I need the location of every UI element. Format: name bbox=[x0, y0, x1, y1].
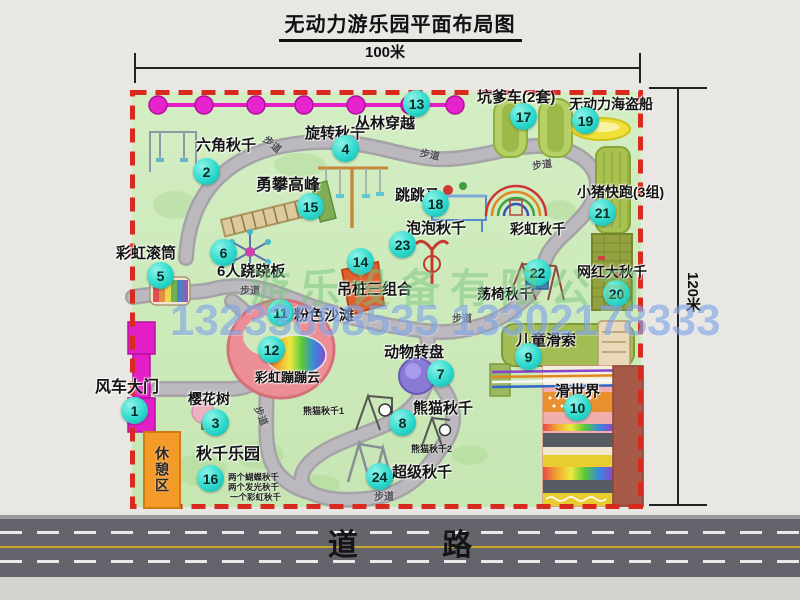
attraction-badge-2: 2 bbox=[193, 158, 220, 185]
attraction-label-24: 超级秋千 bbox=[392, 465, 452, 480]
attraction-badge-7: 7 bbox=[427, 360, 454, 387]
attraction-badge-5: 5 bbox=[147, 262, 174, 289]
attraction-badge-21: 21 bbox=[589, 199, 616, 226]
attraction-badge-10: 10 bbox=[564, 394, 591, 421]
attraction-badge-6: 6 bbox=[210, 239, 237, 266]
attraction-label-22: 荡椅秋千 bbox=[477, 287, 533, 301]
dim-height-tick-bottom bbox=[649, 504, 707, 506]
attraction-badge-4: 4 bbox=[332, 135, 359, 162]
attraction-badge-16: 16 bbox=[197, 465, 224, 492]
attraction-label-23: 泡泡秋千 bbox=[406, 221, 466, 236]
rest-area-box: 休憩区 bbox=[143, 431, 181, 509]
attraction-label-6: 6人跷跷板 bbox=[217, 264, 285, 279]
panda-swing-sub1: 熊猫秋千1 bbox=[303, 404, 344, 417]
dim-height-tick-top bbox=[649, 87, 707, 89]
attraction-badge-23: 23 bbox=[389, 231, 416, 258]
rainbow-swing-label: 彩虹秋千 bbox=[510, 222, 566, 236]
attraction-badge-24: 24 bbox=[366, 463, 393, 490]
attraction-label-15: 勇攀高峰 bbox=[256, 178, 320, 194]
dim-width-tick-right bbox=[639, 53, 641, 83]
path-label-7: 步道 bbox=[374, 488, 394, 503]
attraction-badge-13: 13 bbox=[403, 90, 430, 117]
page-title-text: 无动力游乐园平面布局图 bbox=[279, 8, 522, 42]
attraction-badge-18: 18 bbox=[422, 190, 449, 217]
attraction-badge-14: 14 bbox=[347, 248, 374, 275]
attraction-label-11: 粉色沙滩 bbox=[294, 308, 354, 323]
park-ground bbox=[132, 92, 641, 507]
attraction-badge-12: 12 bbox=[258, 336, 285, 363]
attraction-badge-9: 9 bbox=[515, 343, 542, 370]
attraction-label-12: 彩虹蹦蹦云 bbox=[255, 371, 320, 384]
attraction-label-17: 坑爹车(2套) bbox=[477, 90, 555, 105]
attraction-badge-1: 1 bbox=[121, 397, 148, 424]
attraction-badge-22: 22 bbox=[524, 259, 551, 286]
attraction-label-20: 网红大秋千 bbox=[577, 265, 647, 279]
road: 道 路 bbox=[0, 519, 800, 577]
attraction-badge-19: 19 bbox=[572, 107, 599, 134]
attraction-label-2: 六角秋千 bbox=[196, 138, 256, 153]
road-label: 道 路 bbox=[0, 531, 800, 561]
attraction-label-5: 彩虹滚筒 bbox=[116, 246, 176, 261]
attraction-label-21: 小猪快跑(3组) bbox=[577, 185, 664, 199]
path-label-4: 步道 bbox=[240, 282, 260, 297]
dim-height-line bbox=[677, 88, 679, 506]
attraction-badge-8: 8 bbox=[389, 409, 416, 436]
dim-width-line bbox=[135, 67, 640, 69]
rest-area-label: 休憩区 bbox=[152, 446, 172, 494]
panda-swing-sub2: 熊猫秋千2 bbox=[411, 442, 452, 455]
playground-layout-map: 无动力游乐园平面布局图 100米 120米 bbox=[0, 0, 800, 600]
attraction-label-7: 动物转盘 bbox=[384, 345, 444, 360]
attraction-label-13: 丛林穿越 bbox=[355, 116, 415, 131]
path-label-3: 步道 bbox=[531, 155, 553, 173]
path-label-5: 步道 bbox=[452, 310, 472, 325]
attraction-badge-17: 17 bbox=[510, 103, 537, 130]
attraction-label-8: 熊猫秋千 bbox=[413, 401, 473, 416]
attraction-badge-11: 11 bbox=[267, 299, 294, 326]
attraction-badge-20: 20 bbox=[603, 280, 630, 307]
road-shoulder bbox=[0, 577, 800, 600]
dim-width-label: 100米 bbox=[365, 41, 405, 62]
attraction-label-3: 樱花树 bbox=[188, 392, 230, 406]
attraction-label-16: 秋千乐园 bbox=[196, 447, 260, 463]
attraction-badge-3: 3 bbox=[202, 409, 229, 436]
dim-height-label: 120米 bbox=[682, 272, 703, 312]
page-title: 无动力游乐园平面布局图 bbox=[0, 8, 800, 42]
attraction-badge-15: 15 bbox=[297, 193, 324, 220]
swing-park-note-3: 一个彩虹秋千 bbox=[230, 491, 281, 503]
dim-width-tick-left bbox=[134, 53, 136, 83]
attraction-label-1: 风车大门 bbox=[95, 380, 159, 396]
attraction-label-14: 吊桩三组合 bbox=[337, 282, 412, 297]
